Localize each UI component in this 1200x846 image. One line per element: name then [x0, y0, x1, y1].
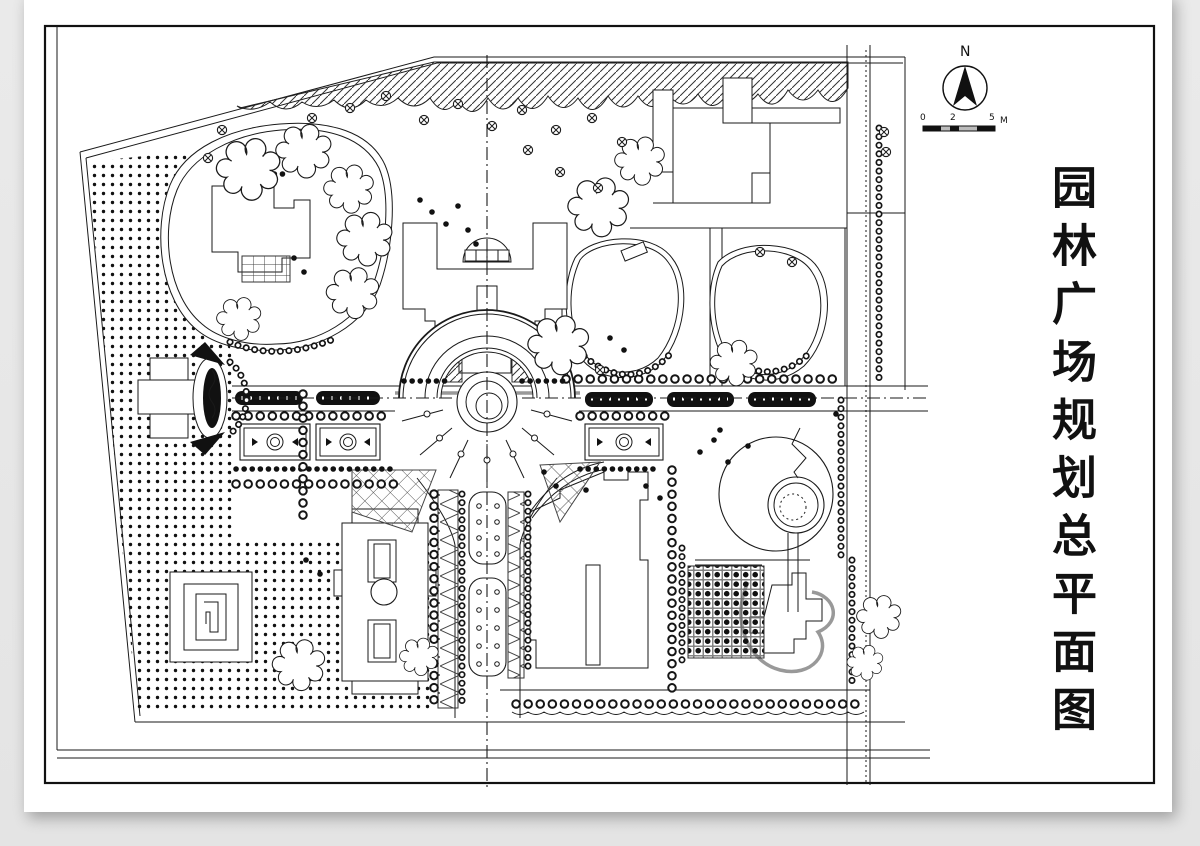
spiral-pavilion	[170, 572, 252, 662]
compass-needle	[953, 66, 977, 106]
drawing-title: 园林广场规划总平面图	[1038, 164, 1102, 764]
north-label: N	[960, 44, 970, 60]
parterre-bed	[585, 424, 663, 460]
plantation-grid	[688, 566, 764, 658]
scale-tick-2: 2	[950, 113, 956, 123]
west-gate-building	[138, 342, 227, 455]
parterre-bed	[316, 424, 380, 460]
north-arrow: N	[943, 44, 987, 110]
scale-tick-0: 0	[920, 113, 926, 123]
site-plan-drawing: N 0 2 5 M	[0, 0, 1200, 846]
scale-bar: 0 2 5 M	[920, 113, 1008, 131]
scale-unit: M	[1000, 116, 1008, 126]
screenshot-stage: N 0 2 5 M 园林广场规划总平面图	[0, 0, 1200, 846]
right-slab-building	[530, 462, 648, 668]
perimeter-hatch-band	[237, 62, 848, 112]
scale-tick-5: 5	[989, 113, 995, 123]
